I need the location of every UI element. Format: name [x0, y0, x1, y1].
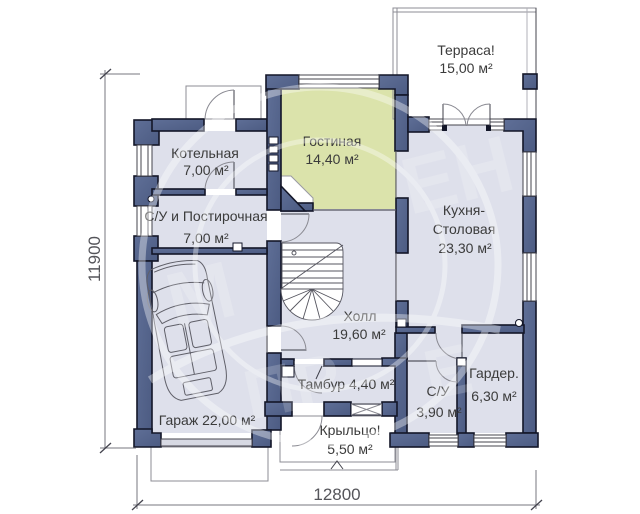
- svg-text:19,60 м²: 19,60 м²: [332, 326, 386, 342]
- svg-text:14,40 м²: 14,40 м²: [305, 151, 359, 167]
- svg-text:6,30 м²: 6,30 м²: [471, 388, 517, 404]
- svg-text:11900: 11900: [85, 236, 104, 282]
- svg-text:15,00 м²: 15,00 м²: [439, 60, 493, 76]
- svg-text:Терраса!: Терраса!: [437, 42, 495, 58]
- svg-text:7,00 м²: 7,00 м²: [183, 162, 229, 178]
- svg-text:Гардер.: Гардер.: [469, 365, 519, 381]
- svg-text:7,00 м²: 7,00 м²: [183, 230, 229, 246]
- svg-text:12800: 12800: [313, 485, 360, 504]
